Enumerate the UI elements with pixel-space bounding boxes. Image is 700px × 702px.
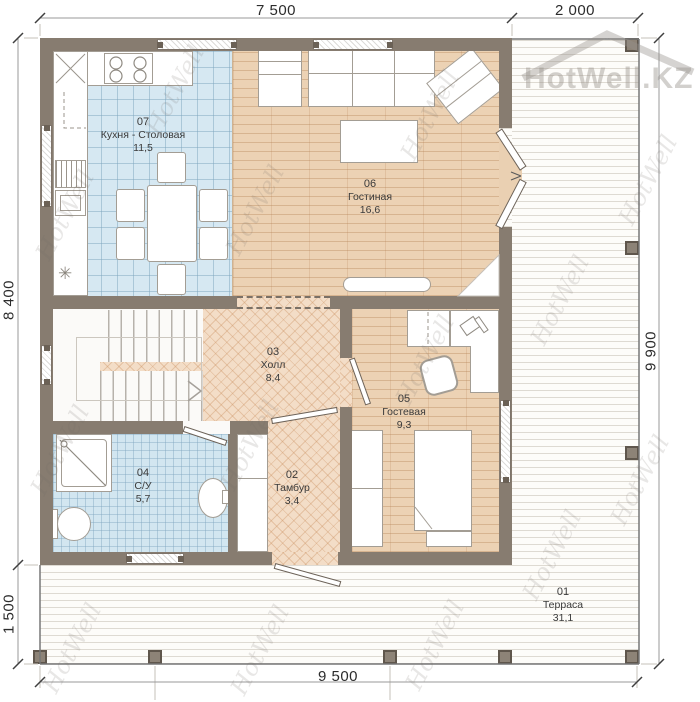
tv-stand xyxy=(343,277,431,292)
wall-hall-bath-left xyxy=(40,421,183,434)
dim-top-main: 7 500 xyxy=(256,2,296,19)
opening-bay xyxy=(499,128,512,227)
bed xyxy=(414,430,472,531)
brand-logo: HotWell.KZ xyxy=(524,62,693,96)
floor-plan: ✳ xyxy=(0,0,700,702)
entry-closet xyxy=(237,434,268,552)
room-label-guest: 05 Гостевая 9,3 xyxy=(382,393,426,432)
dining-chair xyxy=(116,227,145,260)
room-label-hall: 03 Холл 8,4 xyxy=(261,346,286,385)
wall-top xyxy=(40,38,512,51)
opening-living-hall xyxy=(237,296,330,309)
window-living-top xyxy=(313,39,393,50)
terrace-post xyxy=(625,38,639,52)
window-guest-right xyxy=(500,400,511,483)
coffee-table xyxy=(340,120,418,163)
guest-wardrobe-top xyxy=(407,310,450,347)
guest-wardrobe-left xyxy=(350,430,383,547)
stairs-guide xyxy=(76,337,202,401)
opening-tambour-door xyxy=(272,552,338,565)
terrace-post xyxy=(383,650,397,664)
bed-headboard xyxy=(426,531,472,547)
room-label-living: 06 Гостиная 16,6 xyxy=(348,178,392,217)
dining-chair xyxy=(157,264,186,295)
terrace-post xyxy=(498,650,512,664)
terrace-post xyxy=(625,650,639,664)
window-kitchen-left xyxy=(41,125,52,207)
terrace-post xyxy=(148,650,162,664)
wall-mid-left xyxy=(40,296,237,309)
dining-chair xyxy=(199,189,228,222)
terrace-post xyxy=(625,446,639,460)
terrace-post xyxy=(33,650,47,664)
toilet-bowl xyxy=(57,507,91,541)
dining-chair xyxy=(199,227,228,260)
room-label-bathroom: 04 С/У 5,7 xyxy=(134,467,151,506)
kitchen-appliance-1 xyxy=(55,160,86,188)
wall-guest-left-lower xyxy=(340,407,352,565)
desk-return xyxy=(470,346,499,393)
room-label-terrace: 01 Терраса 31,1 xyxy=(543,586,583,625)
kitchen-appliance-2 xyxy=(55,190,86,216)
dining-chair xyxy=(157,152,186,183)
vent-icon: ✳ xyxy=(58,264,72,284)
dim-bottom-full: 9 500 xyxy=(318,668,358,685)
wall-mid-right xyxy=(330,296,512,309)
window-stairs-left xyxy=(41,345,52,385)
window-bathroom-bottom xyxy=(126,553,184,564)
wall-hall-bath-right xyxy=(230,421,268,434)
opening-bath-door xyxy=(183,421,230,434)
dim-left-main: 8 400 xyxy=(1,280,18,320)
dim-left-bottom: 1 500 xyxy=(1,594,18,634)
terrace-post xyxy=(625,241,639,255)
dim-top-right: 2 000 xyxy=(555,2,595,19)
sofa-main xyxy=(308,49,435,107)
stove xyxy=(104,53,153,84)
room-label-kitchen: 07 Кухня - Столовая 11,5 xyxy=(101,116,185,155)
wall-guest-left-upper xyxy=(340,309,352,358)
opening-guest-door xyxy=(340,358,352,407)
wall-bath-closet xyxy=(228,434,237,565)
window-kitchen-top xyxy=(157,39,237,50)
desk xyxy=(450,310,499,347)
shower xyxy=(56,434,112,492)
dining-chair xyxy=(116,189,145,222)
dining-table xyxy=(147,185,197,262)
dim-right-full: 9 900 xyxy=(643,331,660,371)
room-label-tambour: 02 Тамбур 3,4 xyxy=(274,469,310,508)
kitchen-sink xyxy=(53,51,88,86)
sofa-left-module xyxy=(258,49,302,107)
